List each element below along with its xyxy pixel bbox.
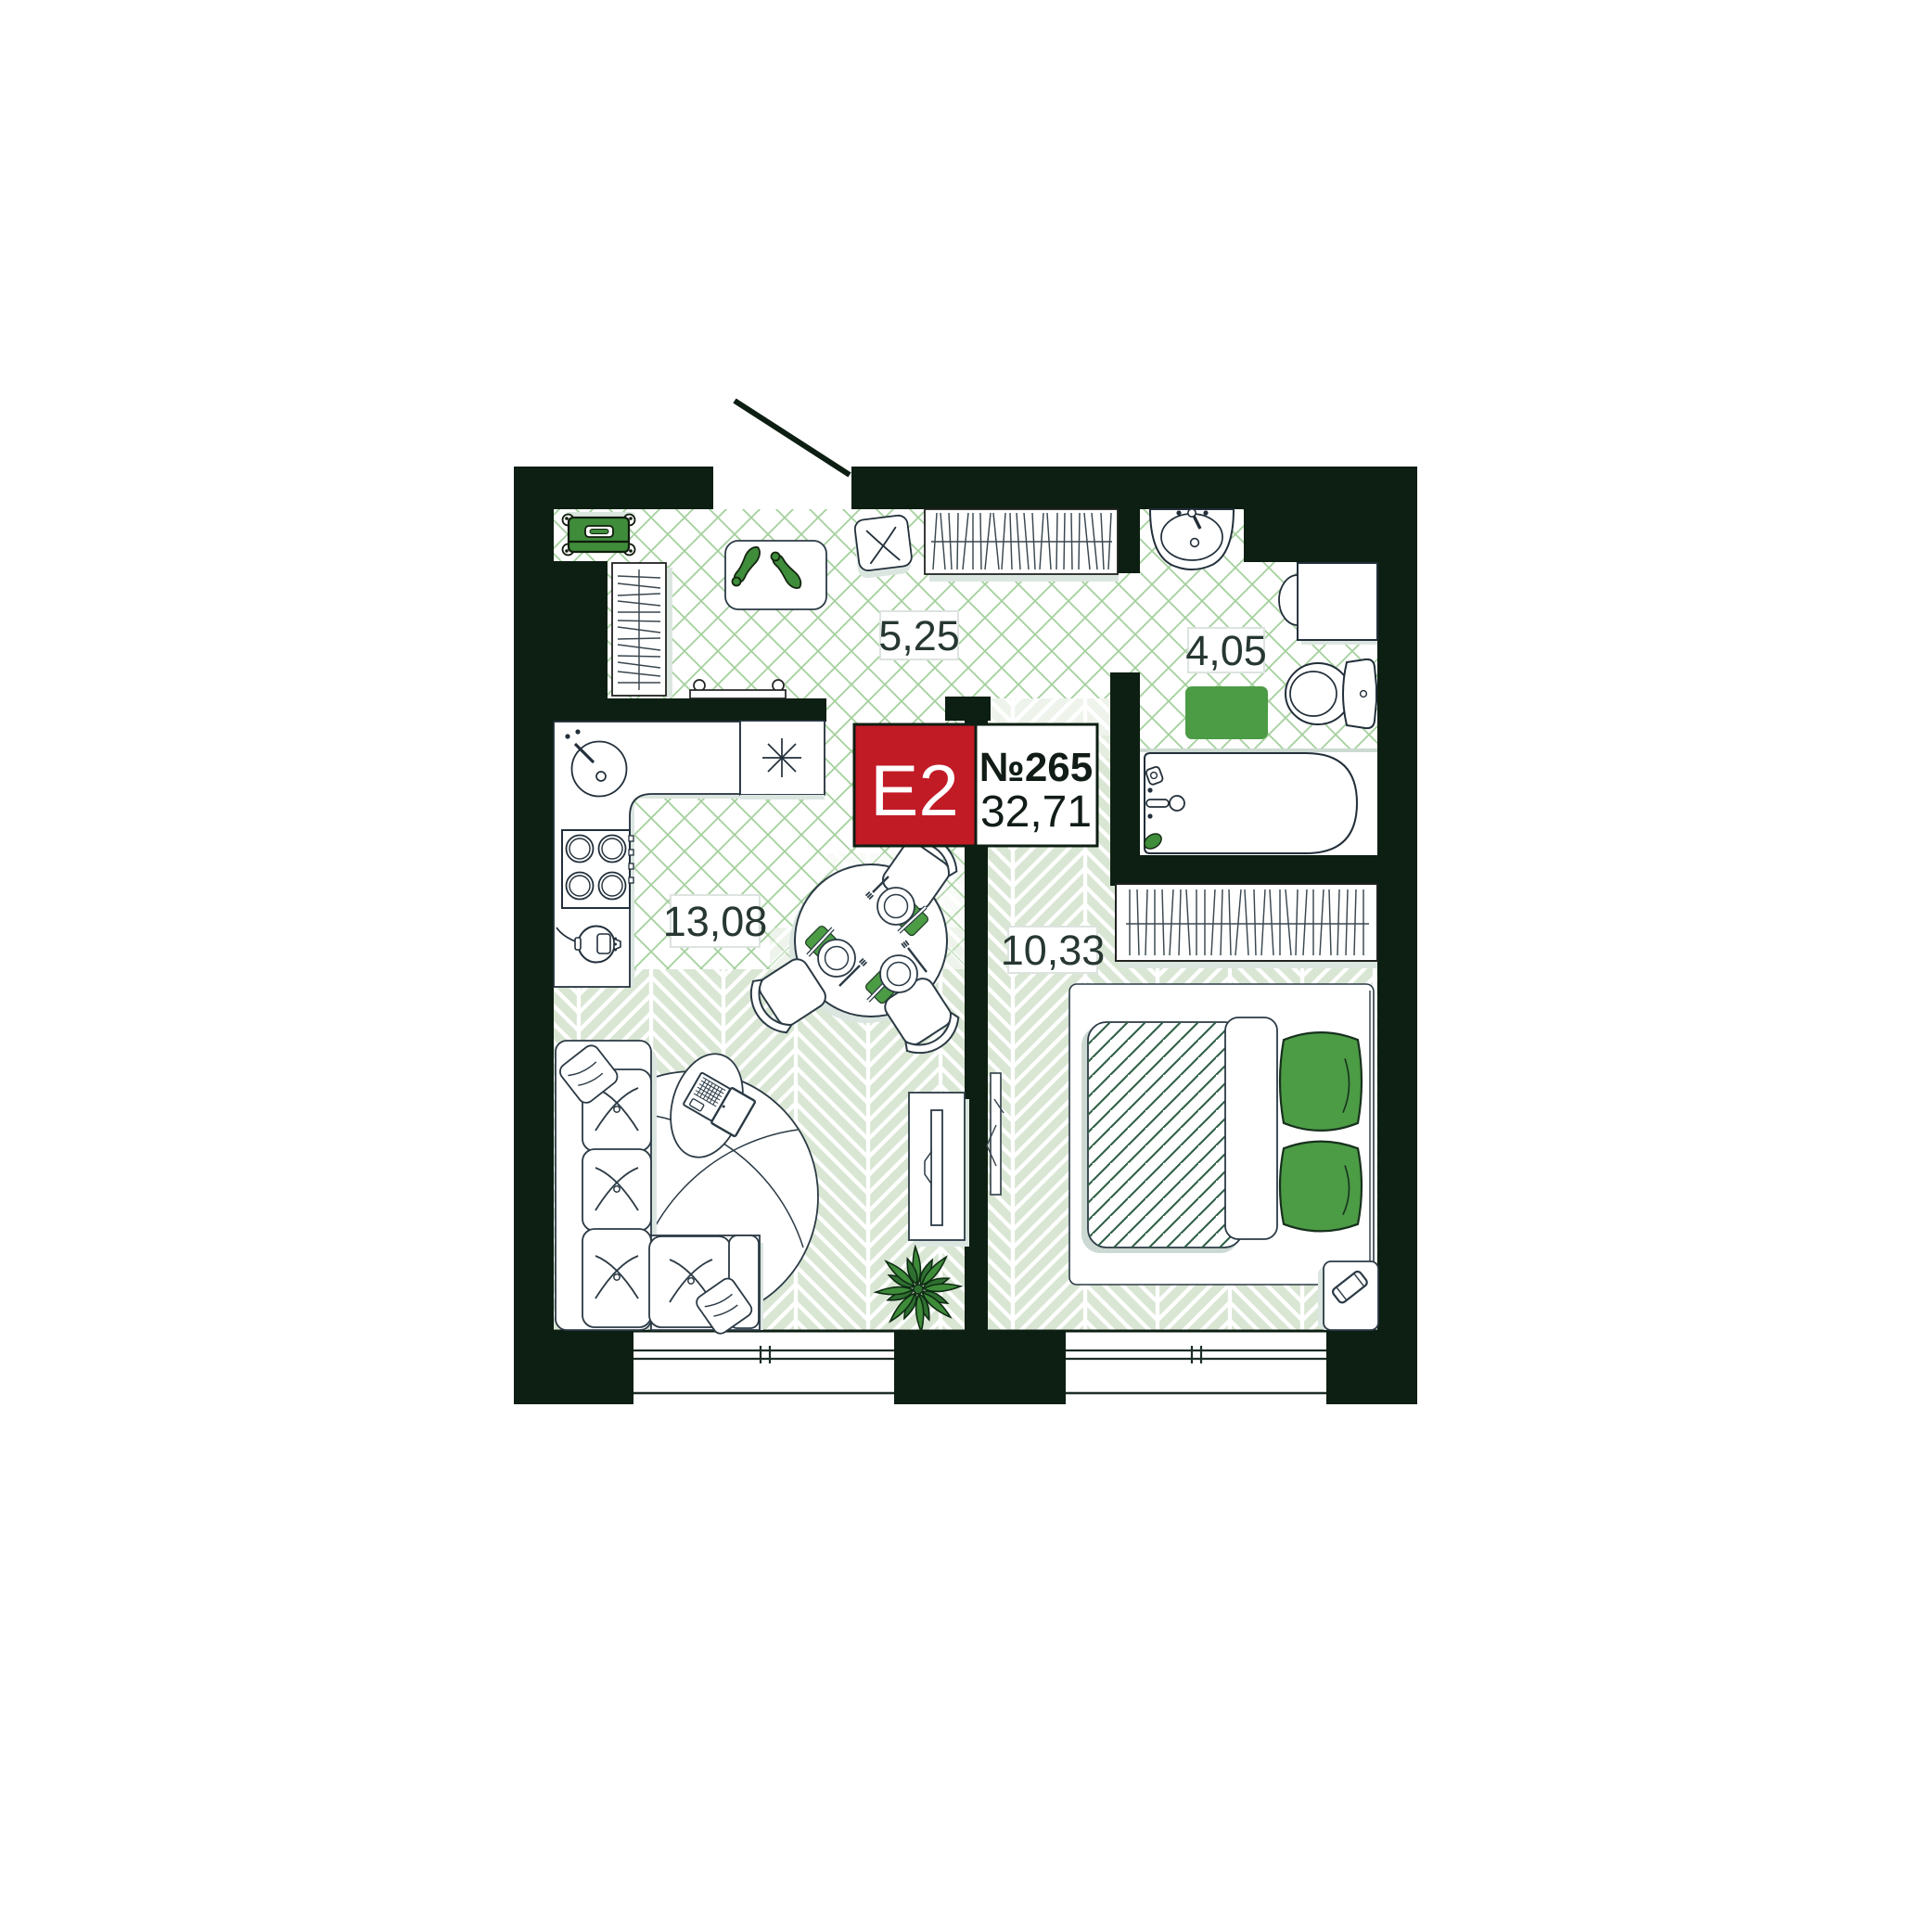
svg-text:32,71: 32,71 [980,787,1092,837]
svg-text:E2: E2 [870,749,958,831]
svg-text:4,05: 4,05 [1185,627,1267,674]
svg-text:№265: №265 [979,745,1093,790]
svg-text:5,25: 5,25 [878,612,960,659]
svg-text:13,08: 13,08 [663,898,768,945]
svg-text:10,33: 10,33 [1001,927,1106,974]
